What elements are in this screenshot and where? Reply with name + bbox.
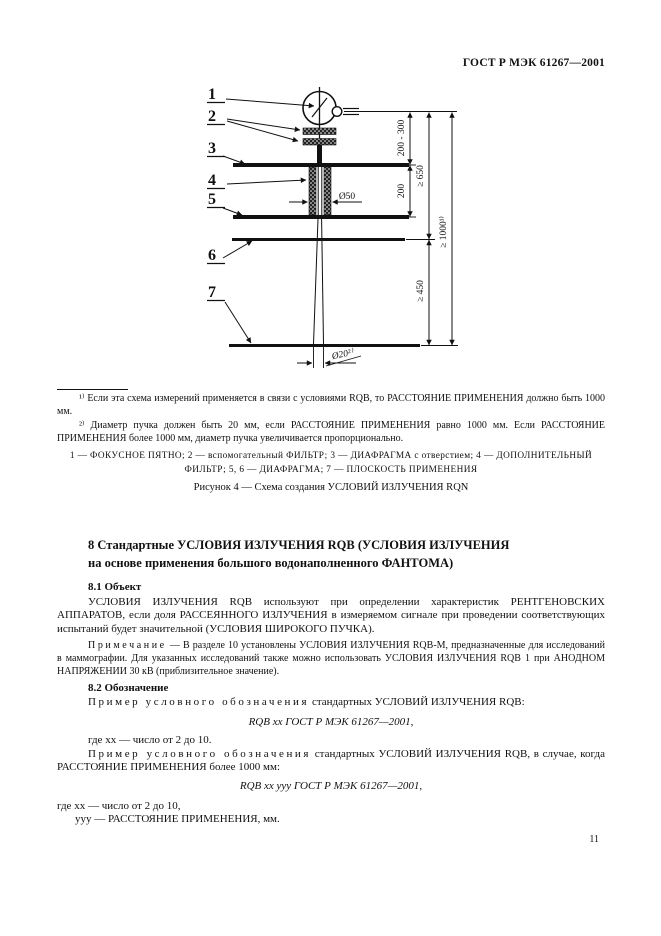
example-1-spaced: Пример условного обозначения bbox=[88, 696, 309, 708]
callout-5: 5 bbox=[208, 191, 216, 208]
footnote-2: ²⁾ Диаметр пучка должен быть 20 мм, если… bbox=[57, 419, 605, 446]
designation-formula-2: RQB xx yyy ГОСТ Р МЭК 61267—2001, bbox=[57, 780, 605, 792]
dim-450: ≥ 450 bbox=[416, 280, 426, 302]
callout-labels: 1 2 3 4 5 6 7 bbox=[207, 86, 314, 343]
document-page: ГОСТ Р МЭК 61267—2001 bbox=[0, 0, 661, 936]
diaphragm-6 bbox=[232, 238, 405, 241]
where-clause-1: где xx — число от 2 до 10. bbox=[88, 734, 212, 747]
callout-6: 6 bbox=[208, 247, 216, 264]
figure-caption: Рисунок 4 — Схема создания УСЛОВИЙ ИЗЛУЧ… bbox=[57, 482, 605, 493]
designation-formula-1: RQB xx ГОСТ Р МЭК 61267—2001, bbox=[57, 716, 605, 728]
section-8-2-heading: 8.2 Обозначение bbox=[88, 682, 168, 694]
footnote-1: ¹⁾ Если эта схема измерений применяется … bbox=[57, 392, 605, 419]
section-8-heading: 8 Стандартные УСЛОВИЯ ИЗЛУЧЕНИЯ RQB (УСЛ… bbox=[57, 537, 636, 572]
figure-4-diagram: 1 2 3 4 5 6 7 bbox=[0, 0, 661, 385]
dim-200-300: 200 - 300 bbox=[397, 120, 407, 157]
footnote-rule bbox=[57, 389, 128, 390]
callout-2: 2 bbox=[208, 108, 216, 125]
example-2-spaced: Пример условного обозначения bbox=[88, 748, 311, 760]
dim-650: ≥ 650 bbox=[416, 165, 426, 187]
designation-example-1: Пример условного обозначения стандартных… bbox=[57, 696, 605, 709]
where-clause-2b: yyy — РАССТОЯНИЕ ПРИМЕНЕНИЯ, мм. bbox=[75, 813, 280, 826]
dim-200: 200 bbox=[397, 184, 407, 199]
callout-7: 7 bbox=[208, 284, 216, 301]
focal-spot bbox=[303, 92, 359, 125]
page-number: 11 bbox=[589, 834, 599, 845]
dim-50: Ø50 bbox=[339, 192, 356, 202]
diaphragm-3 bbox=[233, 163, 409, 167]
example-1-rest: стандартных УСЛОВИЙ ИЗЛУЧЕНИЯ RQB: bbox=[309, 696, 524, 708]
figure-legend: 1 — ФОКУСНОЕ ПЯТНО; 2 — вспомогательный … bbox=[57, 450, 605, 477]
section-8-1-heading: 8.1 Объект bbox=[88, 581, 141, 593]
additional-filter bbox=[309, 167, 331, 215]
note-label: Примечание bbox=[88, 640, 167, 651]
dim-20: Ø20²⁾ bbox=[330, 347, 356, 363]
diaphragm-5 bbox=[233, 215, 409, 219]
dim-1000: ≥ 1000¹⁾ bbox=[438, 216, 449, 248]
designation-example-2: Пример условного обозначения стандартных… bbox=[57, 748, 605, 775]
callout-3: 3 bbox=[208, 140, 216, 157]
section-8-1-body: УСЛОВИЯ ИЗЛУЧЕНИЯ RQB используют при опр… bbox=[57, 596, 605, 636]
application-plane-7 bbox=[229, 344, 420, 347]
callout-1: 1 bbox=[208, 86, 216, 103]
callout-4: 4 bbox=[208, 172, 216, 189]
footnotes: ¹⁾ Если эта схема измерений применяется … bbox=[57, 392, 605, 446]
note-paragraph: Примечание — В разделе 10 установлены УС… bbox=[57, 640, 605, 679]
where-clause-2a: где xx — число от 2 до 10, bbox=[57, 800, 181, 813]
